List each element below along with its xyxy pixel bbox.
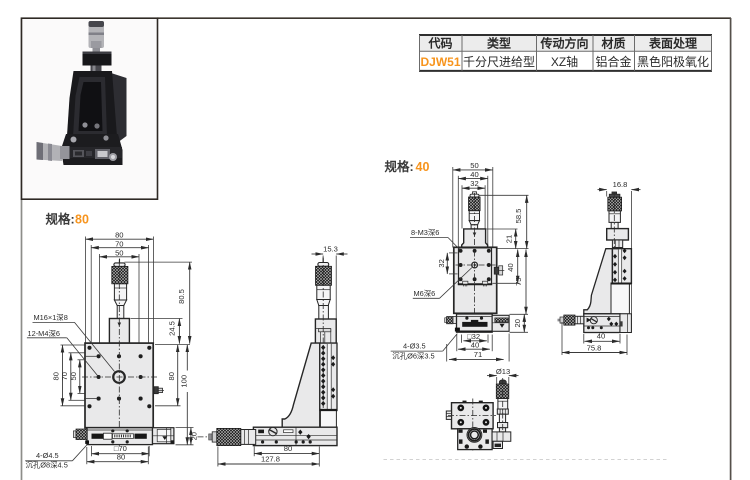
- svg-text:80.5: 80.5: [177, 289, 186, 304]
- svg-text:M6深6: M6深6: [414, 289, 436, 298]
- svg-text:12-M4深6: 12-M4深6: [28, 329, 60, 338]
- svg-text:XZ轴: XZ轴: [551, 54, 578, 69]
- svg-text:40: 40: [471, 341, 479, 350]
- svg-text:8-M3深6: 8-M3深6: [411, 228, 439, 237]
- svg-text:100: 100: [179, 375, 188, 388]
- svg-text:80: 80: [284, 444, 292, 453]
- svg-text:沉孔Ø8深4.5: 沉孔Ø8深4.5: [26, 461, 68, 470]
- svg-text:75: 75: [514, 277, 523, 285]
- svg-text:规格:: 规格:: [385, 159, 414, 174]
- svg-text:50: 50: [69, 372, 78, 380]
- svg-text:70: 70: [115, 239, 123, 248]
- svg-text:80: 80: [115, 231, 123, 240]
- svg-text:铝合金: 铝合金: [595, 54, 631, 69]
- svg-text:32: 32: [437, 259, 446, 267]
- svg-text:材质: 材质: [600, 36, 625, 51]
- svg-text:80: 80: [167, 372, 176, 380]
- svg-text:71: 71: [474, 350, 482, 359]
- svg-text:类型: 类型: [487, 36, 511, 51]
- svg-text:沉孔Ø6深3.5: 沉孔Ø6深3.5: [392, 351, 434, 360]
- svg-text:16.8: 16.8: [613, 180, 628, 189]
- svg-text:50: 50: [115, 248, 123, 257]
- svg-text:传动方向: 传动方向: [539, 36, 588, 51]
- svg-text:40: 40: [470, 170, 478, 179]
- svg-text:50: 50: [470, 161, 478, 170]
- svg-text:40: 40: [597, 332, 605, 341]
- svg-text:20: 20: [513, 319, 522, 327]
- svg-text:千分尺进给型: 千分尺进给型: [463, 55, 535, 69]
- svg-text:24.5: 24.5: [167, 321, 176, 336]
- svg-text:规格:: 规格:: [46, 212, 75, 227]
- svg-text:表面处理: 表面处理: [648, 36, 697, 51]
- svg-text:4-Ø4.5: 4-Ø4.5: [36, 451, 59, 460]
- svg-text:M16×1深8: M16×1深8: [34, 313, 68, 322]
- svg-text:40: 40: [416, 160, 430, 174]
- svg-text:代码: 代码: [427, 36, 452, 51]
- svg-text:80: 80: [75, 213, 89, 227]
- svg-text:80: 80: [117, 453, 125, 462]
- svg-text:15.3: 15.3: [323, 245, 338, 254]
- svg-text:32: 32: [470, 179, 478, 188]
- svg-text:20: 20: [190, 432, 199, 440]
- svg-text:21: 21: [505, 235, 514, 243]
- svg-text:58.5: 58.5: [514, 209, 523, 224]
- svg-text:黑色阳极氧化: 黑色阳极氧化: [637, 55, 709, 69]
- svg-text:DJW51: DJW51: [420, 55, 460, 69]
- svg-text:127.8: 127.8: [261, 455, 280, 464]
- svg-text:70: 70: [60, 372, 69, 380]
- svg-text:Ø13: Ø13: [496, 367, 510, 376]
- svg-text:40: 40: [506, 263, 515, 271]
- svg-text:4-Ø3.5: 4-Ø3.5: [403, 342, 426, 351]
- svg-text:75.8: 75.8: [587, 343, 602, 352]
